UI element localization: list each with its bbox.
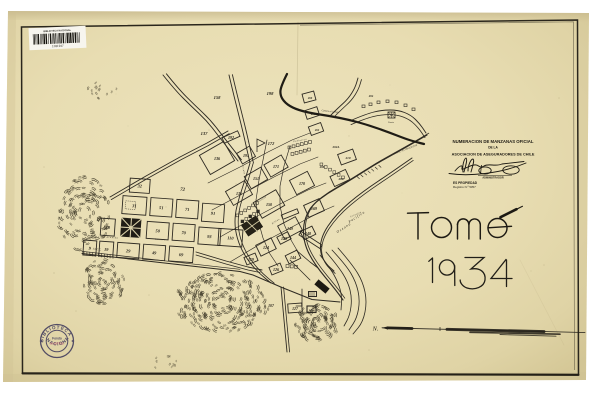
svg-text:N-157753: N-157753: [50, 342, 64, 346]
svg-text:191: 191: [243, 153, 249, 158]
svg-text:119: 119: [248, 257, 254, 262]
svg-text:31: 31: [131, 203, 137, 208]
svg-text:148: 148: [305, 231, 311, 236]
svg-text:151: 151: [253, 176, 259, 181]
svg-text:192: 192: [228, 135, 234, 140]
svg-text:169: 169: [311, 206, 317, 211]
svg-text:71: 71: [185, 207, 190, 212]
svg-text:ES PROPIEDAD: ES PROPIEDAD: [453, 181, 478, 185]
svg-text:198: 198: [267, 91, 275, 96]
svg-text:Fondo: Fondo: [52, 337, 62, 341]
svg-text:128: 128: [281, 236, 287, 241]
svg-text:170: 170: [299, 181, 305, 186]
svg-text:1031947: 1031947: [52, 44, 64, 49]
svg-text:DE LA: DE LA: [488, 146, 498, 150]
svg-text:ADMINISTRADOR: ADMINISTRADOR: [482, 177, 503, 180]
svg-text:91: 91: [211, 211, 216, 216]
svg-text:171: 171: [273, 164, 279, 169]
svg-text:200: 200: [307, 97, 313, 100]
svg-text:202: 202: [314, 129, 320, 132]
svg-text:201: 201: [310, 113, 316, 116]
svg-text:135: 135: [236, 191, 242, 196]
svg-text:137: 137: [201, 131, 209, 136]
svg-text:208: 208: [319, 165, 325, 169]
svg-text:210: 210: [344, 156, 350, 160]
svg-text:NUMERACION DE MANZANAS OFIC: NUMERACION DE MANZANAS OFICIAL: [453, 139, 534, 144]
svg-text:N.: N.: [372, 327, 379, 333]
svg-text:126: 126: [273, 267, 280, 272]
svg-text:202A: 202A: [332, 145, 340, 149]
svg-text:136: 136: [214, 156, 221, 161]
svg-text:51: 51: [159, 205, 164, 210]
svg-text:Registro N.º 5357: Registro N.º 5357: [453, 185, 476, 189]
svg-text:204: 204: [368, 94, 374, 98]
svg-text:206: 206: [337, 177, 343, 181]
svg-text:158: 158: [214, 95, 222, 100]
svg-text:144: 144: [290, 255, 296, 260]
svg-text:172: 172: [268, 141, 275, 146]
svg-text:ASOCIACION DE ASEGURADORES DE: ASOCIACION DE ASEGURADORES DE CHILE: [452, 153, 535, 157]
svg-text:110: 110: [227, 235, 234, 240]
svg-text:150: 150: [266, 202, 272, 207]
